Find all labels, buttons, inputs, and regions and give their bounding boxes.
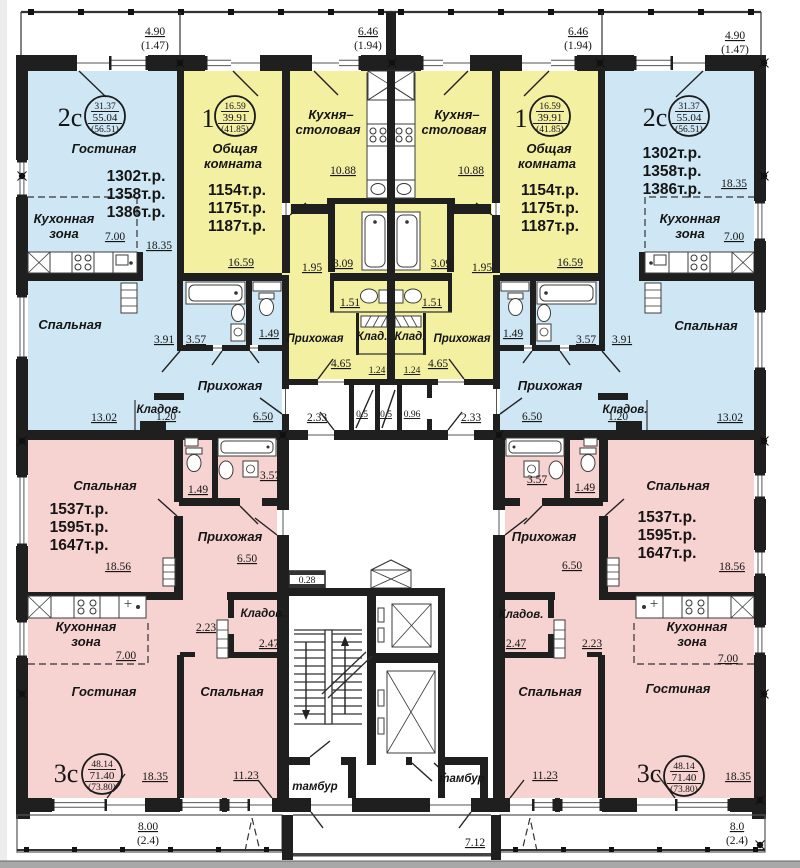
svg-text:31.37: 31.37	[94, 102, 116, 112]
svg-text:6.46: 6.46	[568, 26, 588, 38]
svg-text:1595т.р.: 1595т.р.	[50, 519, 109, 536]
svg-text:1302т.р.: 1302т.р.	[643, 145, 702, 162]
svg-text:71.40: 71.40	[672, 772, 697, 784]
svg-text:4.65: 4.65	[331, 358, 351, 370]
svg-text:Кладов.: Кладов.	[499, 609, 544, 621]
svg-text:2.47: 2.47	[259, 638, 279, 650]
svg-text:2с: 2с	[58, 103, 83, 132]
svg-text:6.50: 6.50	[562, 560, 582, 572]
svg-text:7.00: 7.00	[718, 653, 738, 665]
svg-text:Гостиная: Гостиная	[646, 681, 711, 696]
svg-text:1302т.р.: 1302т.р.	[107, 168, 166, 185]
svg-text:8.0: 8.0	[730, 821, 745, 833]
svg-text:16.59: 16.59	[224, 102, 246, 112]
svg-text:Кухонная: Кухонная	[660, 211, 721, 226]
svg-text:1.20: 1.20	[156, 411, 176, 423]
svg-text:3.57: 3.57	[576, 334, 596, 346]
svg-text:39.91: 39.91	[223, 112, 248, 124]
svg-text:7.00: 7.00	[724, 231, 744, 243]
svg-text:(1.94): (1.94)	[564, 40, 592, 52]
svg-text:Гостиная: Гостиная	[72, 684, 137, 699]
svg-text:(41.85): (41.85)	[221, 124, 249, 135]
svg-text:зона: зона	[71, 634, 101, 649]
svg-text:8.00: 8.00	[138, 821, 158, 833]
svg-text:18.35: 18.35	[725, 771, 751, 783]
svg-text:1154т.р.: 1154т.р.	[208, 182, 266, 199]
svg-text:Кладов.: Кладов.	[241, 608, 286, 620]
svg-text:3с: 3с	[637, 759, 662, 788]
svg-text:16.59: 16.59	[539, 102, 561, 112]
svg-text:3.09: 3.09	[333, 258, 353, 270]
svg-text:1175т.р.: 1175т.р.	[208, 200, 266, 217]
svg-text:1187т.р.: 1187т.р.	[208, 218, 266, 235]
svg-text:Прихожая: Прихожая	[433, 333, 490, 345]
svg-text:7.12: 7.12	[465, 837, 485, 849]
svg-text:16.59: 16.59	[228, 257, 254, 269]
svg-text:зона: зона	[677, 634, 707, 649]
svg-text:55.04: 55.04	[93, 112, 118, 124]
svg-text:(2.4): (2.4)	[726, 835, 748, 847]
svg-text:1386т.р.: 1386т.р.	[107, 204, 166, 221]
svg-text:Общая: Общая	[212, 141, 258, 156]
svg-text:1537т.р.: 1537т.р.	[638, 509, 697, 526]
svg-text:(2.4): (2.4)	[137, 835, 159, 847]
svg-text:18.56: 18.56	[105, 561, 131, 573]
svg-text:1.51: 1.51	[422, 297, 442, 309]
svg-text:1.49: 1.49	[259, 328, 279, 340]
svg-text:6.50: 6.50	[253, 411, 273, 423]
svg-text:1.24: 1.24	[404, 366, 421, 376]
svg-text:комната: комната	[518, 156, 576, 171]
svg-text:4.90: 4.90	[725, 30, 745, 42]
svg-text:1358т.р.: 1358т.р.	[643, 163, 702, 180]
svg-text:3.57: 3.57	[527, 474, 547, 486]
svg-text:1358т.р.: 1358т.р.	[107, 186, 166, 203]
svg-text:Клад.: Клад.	[395, 331, 426, 343]
svg-text:Прихожая: Прихожая	[286, 333, 343, 345]
svg-text:(56.51): (56.51)	[91, 124, 119, 135]
svg-text:(1.47): (1.47)	[721, 44, 749, 56]
svg-text:1386т.р.: 1386т.р.	[643, 181, 702, 198]
svg-text:2.23: 2.23	[582, 638, 602, 650]
svg-text:1.20: 1.20	[608, 411, 628, 423]
svg-text:11.23: 11.23	[233, 770, 259, 782]
svg-text:16.59: 16.59	[557, 257, 583, 269]
svg-text:3.57: 3.57	[186, 334, 206, 346]
svg-text:2.33: 2.33	[307, 412, 327, 424]
svg-text:3.91: 3.91	[612, 334, 632, 346]
svg-text:71.40: 71.40	[90, 770, 115, 782]
svg-text:3.57: 3.57	[260, 470, 280, 482]
svg-text:3.91: 3.91	[154, 334, 174, 346]
svg-text:столовая: столовая	[296, 122, 361, 137]
svg-text:3.09: 3.09	[431, 258, 451, 270]
svg-text:(73.80): (73.80)	[88, 782, 116, 793]
svg-text:7.00: 7.00	[105, 231, 125, 243]
svg-text:0.5: 0.5	[356, 410, 368, 420]
svg-text:48.14: 48.14	[673, 762, 695, 772]
svg-text:1: 1	[202, 104, 215, 133]
svg-text:Кухонная: Кухонная	[56, 619, 117, 634]
svg-text:(1.47): (1.47)	[141, 40, 169, 52]
svg-text:18.35: 18.35	[142, 771, 168, 783]
svg-text:2.33: 2.33	[461, 412, 481, 424]
svg-text:0.28: 0.28	[299, 576, 316, 586]
svg-text:4.90: 4.90	[145, 26, 165, 38]
svg-text:1.95: 1.95	[302, 262, 322, 274]
svg-text:Прихожая: Прихожая	[512, 529, 577, 544]
svg-text:(73.80): (73.80)	[670, 784, 698, 795]
svg-text:1154т.р.: 1154т.р.	[521, 182, 579, 199]
svg-text:Кухня–: Кухня–	[434, 107, 479, 122]
svg-text:1595т.р.: 1595т.р.	[638, 527, 697, 544]
svg-text:Спальная: Спальная	[38, 317, 102, 332]
svg-text:1647т.р.: 1647т.р.	[50, 537, 109, 554]
svg-text:0.96: 0.96	[404, 410, 421, 420]
svg-text:18.56: 18.56	[719, 561, 745, 573]
svg-text:столовая: столовая	[422, 122, 487, 137]
svg-text:11.23: 11.23	[532, 770, 558, 782]
svg-text:1.49: 1.49	[575, 482, 595, 494]
svg-text:(41.85): (41.85)	[536, 124, 564, 135]
svg-text:10.88: 10.88	[458, 165, 484, 177]
svg-text:Прихожая: Прихожая	[198, 529, 263, 544]
svg-text:10.88: 10.88	[330, 165, 356, 177]
svg-text:Общая: Общая	[526, 141, 572, 156]
svg-text:1.24: 1.24	[369, 366, 386, 376]
svg-text:Спальная: Спальная	[674, 318, 738, 333]
svg-text:(1.94): (1.94)	[354, 40, 382, 52]
svg-text:3с: 3с	[54, 759, 79, 788]
svg-text:Прихожая: Прихожая	[518, 378, 583, 393]
svg-text:Спальная: Спальная	[646, 478, 710, 493]
svg-text:комната: комната	[204, 156, 262, 171]
svg-text:31.37: 31.37	[678, 102, 700, 112]
svg-text:1647т.р.: 1647т.р.	[638, 545, 697, 562]
svg-text:2.23: 2.23	[196, 622, 216, 634]
svg-text:Кухня–: Кухня–	[308, 107, 353, 122]
svg-text:4.65: 4.65	[428, 358, 448, 370]
svg-text:48.14: 48.14	[91, 760, 113, 770]
svg-text:55.04: 55.04	[677, 112, 702, 124]
svg-text:0.5: 0.5	[380, 410, 392, 420]
svg-text:1537т.р.: 1537т.р.	[50, 501, 109, 518]
svg-text:6.46: 6.46	[358, 26, 378, 38]
svg-text:18.35: 18.35	[146, 240, 172, 252]
svg-text:2с: 2с	[643, 103, 668, 132]
svg-text:6.50: 6.50	[522, 411, 542, 423]
svg-text:зона: зона	[675, 226, 705, 241]
svg-text:Гостиная: Гостиная	[72, 141, 137, 156]
svg-text:13.02: 13.02	[717, 412, 743, 424]
svg-text:1.95: 1.95	[472, 262, 492, 274]
svg-text:1.51: 1.51	[340, 297, 360, 309]
svg-text:Кухонная: Кухонная	[667, 619, 728, 634]
svg-text:1: 1	[515, 104, 528, 133]
svg-text:Клад.: Клад.	[357, 331, 388, 343]
svg-text:тамбур: тамбур	[292, 781, 337, 793]
svg-text:1.49: 1.49	[503, 328, 523, 340]
svg-text:39.91: 39.91	[538, 112, 563, 124]
svg-text:7.00: 7.00	[116, 650, 136, 662]
svg-text:1.49: 1.49	[188, 484, 208, 496]
svg-text:Спальная: Спальная	[73, 478, 137, 493]
svg-text:Спальная: Спальная	[518, 684, 582, 699]
svg-text:6.50: 6.50	[237, 553, 257, 565]
svg-text:2.47: 2.47	[506, 638, 526, 650]
svg-text:13.02: 13.02	[91, 412, 117, 424]
svg-text:(56.51): (56.51)	[675, 124, 703, 135]
svg-text:Спальная: Спальная	[200, 684, 264, 699]
svg-text:18.35: 18.35	[721, 178, 747, 190]
svg-text:зона: зона	[49, 226, 79, 241]
svg-text:1175т.р.: 1175т.р.	[521, 200, 579, 217]
svg-text:Кухонная: Кухонная	[34, 211, 95, 226]
svg-text:тамбур: тамбур	[439, 773, 484, 785]
svg-text:1187т.р.: 1187т.р.	[521, 218, 579, 235]
svg-text:Прихожая: Прихожая	[198, 378, 263, 393]
